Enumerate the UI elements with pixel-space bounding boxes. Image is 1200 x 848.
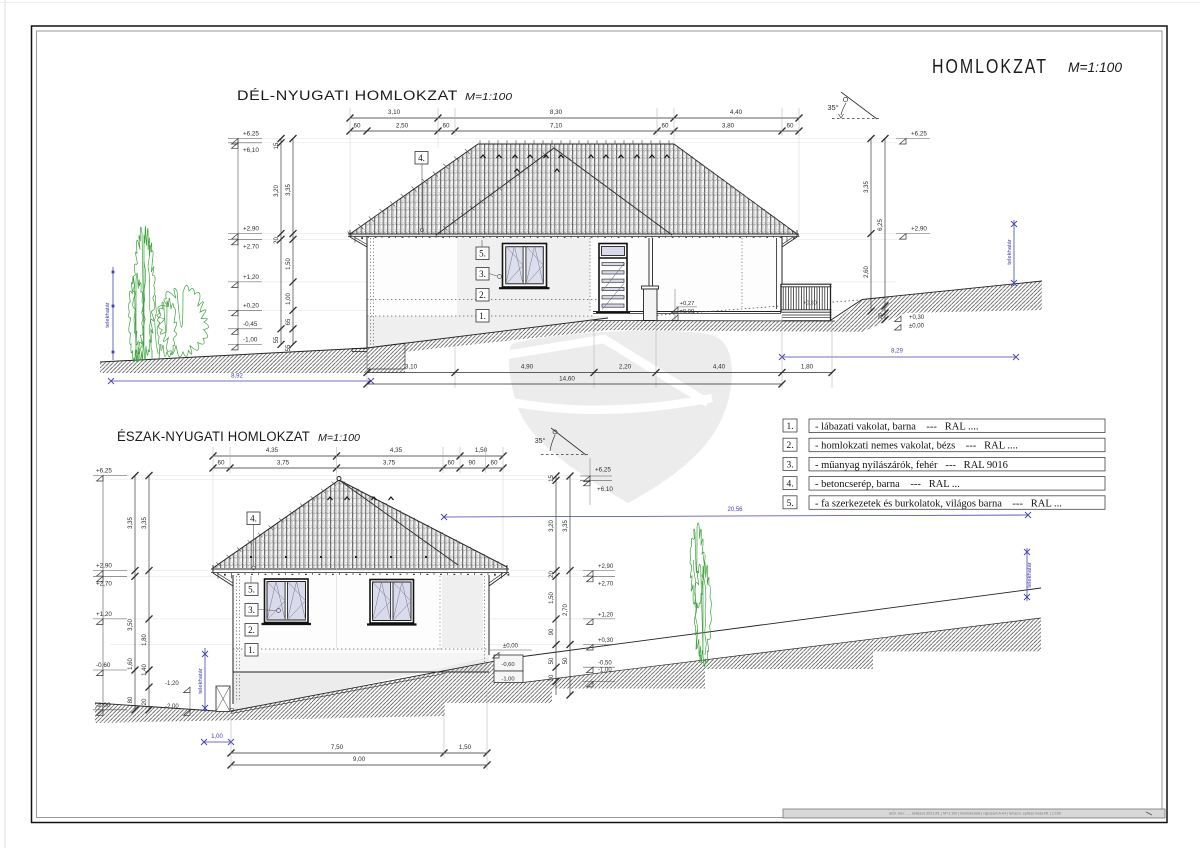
svg-text:90: 90 bbox=[549, 628, 555, 635]
svg-text:4,90: 4,90 bbox=[521, 364, 534, 371]
svg-text:+6,25: +6,25 bbox=[96, 468, 112, 475]
svg-text:+2,90: +2,90 bbox=[96, 563, 112, 570]
svg-text:+6,25: +6,25 bbox=[243, 131, 259, 138]
svg-text:1.: 1. bbox=[479, 311, 486, 321]
svg-text:1,50: 1,50 bbox=[459, 744, 472, 751]
svg-text:5.: 5. bbox=[248, 585, 255, 595]
svg-text:- betoncserép, barna ---: - betoncserép, barna --- RAL ... bbox=[815, 479, 960, 490]
svg-text:M=1:100: M=1:100 bbox=[465, 91, 512, 103]
svg-text:1,00: 1,00 bbox=[286, 293, 292, 305]
svg-text:ÉSZAK-NYUGATI HOMLOKZAT: ÉSZAK-NYUGATI HOMLOKZAT bbox=[117, 429, 310, 444]
svg-text:55: 55 bbox=[274, 336, 280, 343]
svg-text:+1,20: +1,20 bbox=[96, 611, 112, 618]
svg-text:+1,20: +1,20 bbox=[598, 612, 614, 618]
svg-text:M=1:100: M=1:100 bbox=[1068, 60, 1122, 75]
svg-text:1,80: 1,80 bbox=[801, 364, 814, 371]
svg-text:3,20: 3,20 bbox=[549, 520, 555, 532]
svg-text:telekhatár: telekhatár bbox=[1027, 562, 1033, 588]
svg-text:2,50: 2,50 bbox=[396, 123, 409, 130]
svg-text:M=1:100: M=1:100 bbox=[318, 432, 360, 444]
svg-text:20,56: 20,56 bbox=[727, 507, 743, 513]
svg-text:- fa szerkezetek és burkolatok: - fa szerkezetek és burkolatok, világos … bbox=[815, 498, 1062, 509]
svg-text:+2,70: +2,70 bbox=[598, 581, 614, 587]
svg-text:-0,60: -0,60 bbox=[501, 662, 514, 668]
svg-text:60: 60 bbox=[490, 460, 498, 467]
svg-text:4,35: 4,35 bbox=[266, 447, 279, 454]
svg-text:50: 50 bbox=[563, 657, 569, 664]
svg-text:8,92: 8,92 bbox=[231, 374, 243, 380]
svg-text:20: 20 bbox=[274, 237, 280, 244]
svg-text:- műanyag nyílászárók, fehér: - műanyag nyílászárók, fehér --- RAL 901… bbox=[815, 460, 1008, 471]
svg-text:1,60: 1,60 bbox=[128, 658, 134, 670]
svg-text:2.: 2. bbox=[248, 625, 255, 635]
svg-text:- homlokzati nemes vakolat, bé: - homlokzati nemes vakolat, bézs --- RAL… bbox=[815, 441, 1018, 452]
svg-text:3,10: 3,10 bbox=[388, 109, 401, 116]
svg-text:20: 20 bbox=[142, 698, 148, 705]
svg-text:+2,70: +2,70 bbox=[243, 243, 259, 250]
svg-text:3,75: 3,75 bbox=[383, 460, 396, 467]
svg-text:35°: 35° bbox=[827, 103, 838, 112]
svg-text:15: 15 bbox=[274, 142, 280, 149]
svg-text:+0,20: +0,20 bbox=[243, 302, 259, 309]
svg-text:20: 20 bbox=[549, 571, 555, 578]
svg-text:5.: 5. bbox=[479, 249, 486, 259]
svg-text:4,40: 4,40 bbox=[713, 364, 726, 371]
svg-text:15: 15 bbox=[549, 475, 555, 482]
svg-text:3,35: 3,35 bbox=[128, 517, 134, 529]
svg-text:3,10: 3,10 bbox=[405, 364, 418, 371]
svg-text:-1,00: -1,00 bbox=[243, 336, 258, 343]
svg-text:+2,90: +2,90 bbox=[243, 226, 259, 233]
svg-text:3.: 3. bbox=[786, 460, 793, 470]
svg-text:3,75: 3,75 bbox=[277, 460, 290, 467]
svg-text:+2,90: +2,90 bbox=[911, 226, 927, 233]
svg-text:+0,30: +0,30 bbox=[598, 638, 614, 644]
svg-text:35°: 35° bbox=[535, 437, 546, 445]
svg-text:8,30: 8,30 bbox=[550, 109, 563, 116]
svg-text:8,29: 8,29 bbox=[891, 349, 903, 355]
svg-text:+2,90: +2,90 bbox=[598, 564, 614, 570]
svg-text:2.: 2. bbox=[479, 290, 486, 300]
svg-text:1.: 1. bbox=[248, 645, 255, 655]
svg-text:1,50: 1,50 bbox=[549, 592, 555, 604]
svg-text:60: 60 bbox=[353, 123, 361, 130]
svg-text:±0,00: ±0,00 bbox=[909, 324, 925, 330]
svg-text:-0,60: -0,60 bbox=[96, 662, 111, 669]
svg-text:60: 60 bbox=[217, 460, 225, 467]
svg-text:60: 60 bbox=[661, 123, 669, 130]
svg-text:+1,20: +1,20 bbox=[243, 274, 259, 281]
svg-text:+2,70: +2,70 bbox=[96, 580, 112, 587]
svg-text:HOMLOKZAT: HOMLOKZAT bbox=[932, 55, 1048, 78]
svg-text:3,35: 3,35 bbox=[286, 184, 292, 196]
svg-text:60: 60 bbox=[447, 460, 455, 467]
svg-text:-0,45: -0,45 bbox=[243, 321, 258, 328]
svg-text:3.: 3. bbox=[479, 269, 486, 279]
svg-text:4.: 4. bbox=[786, 480, 793, 490]
svg-text:55: 55 bbox=[286, 344, 292, 351]
svg-text:-1,00: -1,00 bbox=[598, 667, 612, 673]
svg-text:3,35: 3,35 bbox=[563, 520, 569, 532]
svg-text:telekhatár: telekhatár bbox=[1007, 239, 1013, 265]
svg-text:3,80: 3,80 bbox=[722, 123, 735, 130]
svg-text:-0,50: -0,50 bbox=[598, 661, 612, 667]
svg-text:4,40: 4,40 bbox=[730, 109, 743, 116]
svg-text:60: 60 bbox=[786, 123, 794, 130]
svg-text:4.: 4. bbox=[250, 514, 257, 524]
svg-text:telekhatár: telekhatár bbox=[105, 302, 111, 328]
svg-text:7,10: 7,10 bbox=[550, 123, 563, 130]
svg-text:1,80: 1,80 bbox=[142, 634, 148, 646]
svg-text:9,00: 9,00 bbox=[353, 756, 366, 763]
svg-text:50: 50 bbox=[549, 657, 555, 664]
svg-text:3.: 3. bbox=[248, 605, 255, 615]
svg-text:±0,00: ±0,00 bbox=[503, 644, 519, 650]
svg-text:90: 90 bbox=[468, 460, 476, 467]
svg-text:- lábazati vakolat, barna -: - lábazati vakolat, barna --- RAL .... bbox=[815, 422, 978, 433]
svg-text:±0,00: ±0,00 bbox=[680, 309, 695, 315]
svg-text:2,70: 2,70 bbox=[563, 604, 569, 616]
svg-text:3,50: 3,50 bbox=[128, 619, 134, 631]
svg-text:2.: 2. bbox=[786, 441, 793, 451]
svg-text:1,00: 1,00 bbox=[211, 734, 223, 740]
svg-text:DÉL-NYUGATI HOMLOKZAT: DÉL-NYUGATI HOMLOKZAT bbox=[237, 88, 458, 103]
svg-text:-1,20: -1,20 bbox=[165, 681, 179, 687]
svg-text:telekhatár: telekhatár bbox=[198, 668, 204, 694]
svg-text:+0,27: +0,27 bbox=[680, 301, 695, 307]
svg-text:2,60: 2,60 bbox=[864, 266, 870, 278]
svg-text:30: 30 bbox=[549, 674, 555, 681]
svg-text:4.: 4. bbox=[418, 153, 425, 163]
svg-text:4,35: 4,35 bbox=[390, 447, 403, 454]
svg-text:-1,00: -1,00 bbox=[501, 677, 514, 683]
svg-text:1,40: 1,40 bbox=[142, 664, 148, 676]
svg-text:+0,30: +0,30 bbox=[803, 301, 816, 307]
svg-text:20: 20 bbox=[878, 313, 884, 319]
svg-text:2,20: 2,20 bbox=[619, 364, 632, 371]
svg-text:+6,10: +6,10 bbox=[597, 486, 613, 493]
svg-text:5.: 5. bbox=[786, 499, 793, 509]
svg-text:arch. terv: ..... keltezes 202: arch. terv: ..... keltezes 2021.05. | M=… bbox=[889, 812, 1061, 816]
svg-text:80: 80 bbox=[128, 696, 134, 703]
svg-text:14,60: 14,60 bbox=[559, 376, 575, 383]
svg-text:+6,25: +6,25 bbox=[595, 467, 611, 474]
svg-text:3,35: 3,35 bbox=[864, 181, 870, 193]
svg-text:1.: 1. bbox=[786, 422, 793, 432]
svg-text:+6,25: +6,25 bbox=[911, 131, 927, 138]
svg-text:1,50: 1,50 bbox=[286, 258, 292, 270]
svg-text:3,20: 3,20 bbox=[274, 185, 280, 197]
svg-text:65: 65 bbox=[286, 318, 292, 325]
svg-text:7,50: 7,50 bbox=[331, 744, 344, 751]
svg-text:+6,10: +6,10 bbox=[243, 147, 259, 154]
svg-text:+0,30: +0,30 bbox=[909, 315, 925, 321]
svg-text:6,25: 6,25 bbox=[878, 219, 884, 231]
svg-text:60: 60 bbox=[442, 123, 450, 130]
svg-text:3,35: 3,35 bbox=[142, 517, 148, 529]
